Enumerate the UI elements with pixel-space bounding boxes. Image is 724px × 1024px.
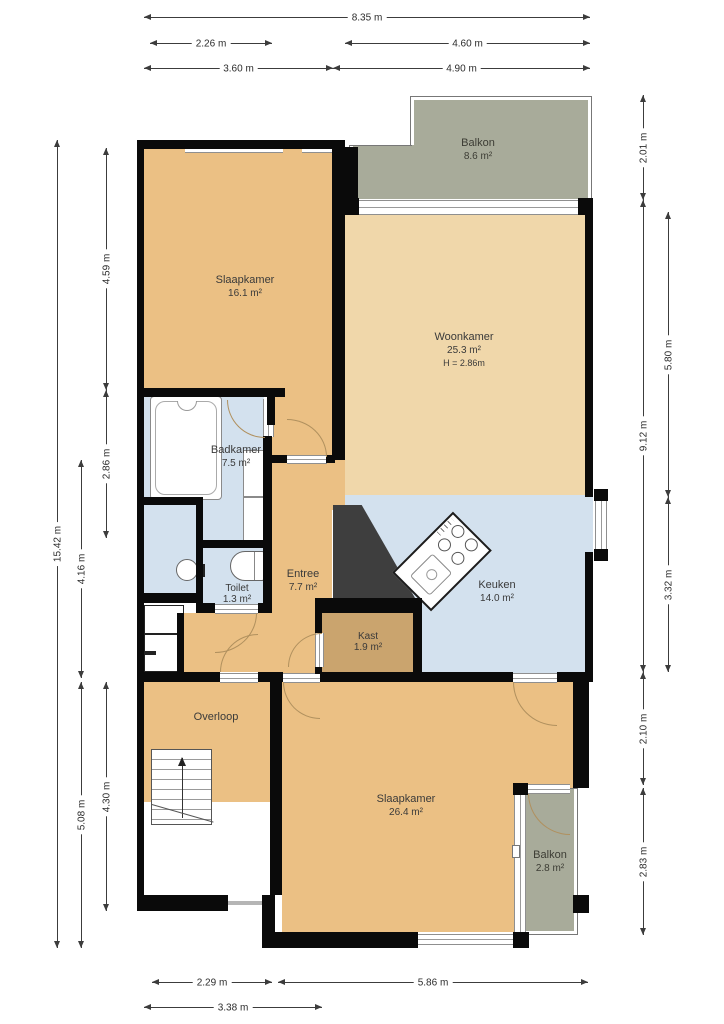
wall-segment	[258, 603, 270, 613]
kitchen-label: Keuken 14.0 m²	[478, 579, 515, 605]
landing-door-threshold	[220, 673, 258, 683]
dim-right-balcony: 2.01 m	[643, 95, 644, 200]
floorplan: Balkon 8.6 m² Balkon 2.8 m²	[0, 0, 724, 1024]
bathroom-label: Badkamer 7.5 m²	[211, 444, 261, 470]
dim-left-landing: 4.30 m	[106, 682, 107, 911]
wall-segment	[594, 489, 608, 501]
dim-top-total: 8.35 m	[144, 17, 590, 18]
dim-bottom-left-b: 3.38 m	[144, 1007, 322, 1008]
kitchen-door-recess	[585, 497, 593, 552]
livingroom-label: Woonkamer 25.3 m² H = 2.86m	[434, 331, 493, 370]
entrance-door-line	[228, 901, 262, 905]
livingroom-window	[358, 200, 578, 215]
dim-bottom-right-a: 5.86 m	[278, 982, 588, 983]
wall-segment	[137, 895, 228, 911]
wall-segment	[270, 682, 282, 895]
dim-right-balcony2: 2.83 m	[643, 788, 644, 935]
hall-label: Entree 7.7 m²	[287, 568, 319, 594]
washbasin-nook-floor	[144, 505, 196, 595]
wall-segment	[137, 140, 345, 149]
wall-segment	[177, 613, 184, 672]
washbasin-icon	[176, 559, 198, 581]
wall-segment	[585, 200, 593, 497]
wall-segment	[315, 598, 420, 613]
wall-segment	[585, 552, 593, 682]
wall-segment	[262, 932, 418, 948]
landing-label: Overloop	[194, 711, 239, 724]
wall-segment	[263, 436, 272, 613]
wall-segment	[345, 147, 358, 202]
room-balcony-top-lower: Balkon 8.6 m²	[349, 145, 592, 202]
wall-segment	[315, 613, 322, 633]
wall-segment	[594, 549, 608, 561]
wall-segment	[258, 672, 283, 682]
wall-segment	[137, 140, 144, 911]
wall-segment	[326, 455, 335, 463]
wall-segment	[267, 397, 275, 425]
closet-label: Kast 1.9 m²	[354, 631, 382, 653]
stairs-up-arrow	[182, 758, 183, 818]
bedroom2-label: Slaapkamer 26.4 m²	[377, 793, 436, 819]
wall-segment	[513, 783, 528, 795]
bedroom1-label: Slaapkamer 16.1 m²	[216, 274, 275, 300]
island-sink-icon	[410, 553, 452, 595]
dim-left-hall: 4.16 m	[81, 460, 82, 678]
wall-segment	[137, 388, 285, 397]
balcony-window-handle	[512, 845, 520, 858]
dim-top-left-a: 2.26 m	[150, 43, 272, 44]
wall-segment	[196, 603, 215, 613]
balcony-top-label: Balkon 8.6 m²	[461, 137, 495, 163]
dim-right-main: 9.12 m	[643, 200, 644, 672]
bedroom2-balcony-window	[514, 793, 526, 932]
wall-segment	[573, 672, 589, 788]
room-bedroom1-floor	[144, 147, 334, 392]
wall-segment	[513, 932, 529, 948]
dim-top-left-b: 3.60 m	[144, 68, 333, 69]
wall-segment	[137, 672, 220, 682]
wall-segment	[413, 598, 422, 672]
dim-right-living: 5.80 m	[668, 212, 669, 497]
dim-right-kitchen: 3.32 m	[668, 497, 669, 672]
dim-bottom-left-a: 2.29 m	[152, 982, 272, 983]
dim-right-gap: 2.10 m	[643, 672, 644, 785]
dim-left-bathroom: 2.86 m	[106, 390, 107, 538]
room-balcony-top	[410, 96, 592, 149]
wall-segment	[332, 140, 345, 460]
wall-segment	[573, 895, 589, 913]
dim-top-right-a: 4.60 m	[345, 43, 590, 44]
wall-segment	[315, 667, 322, 674]
balcony-bottom-label: Balkon 2.8 m²	[533, 849, 567, 875]
wall-segment	[272, 455, 287, 463]
dim-left-total: 15.42 m	[57, 140, 58, 948]
kitchen-french-balcony-door	[595, 498, 607, 551]
wall-segment	[137, 497, 203, 505]
dim-left-block: 5.08 m	[81, 682, 82, 948]
dim-top-right-b: 4.90 m	[333, 68, 590, 69]
room-balcony-bottom: Balkon 2.8 m²	[524, 788, 578, 935]
toilet-label: Toilet 1.3 m²	[223, 583, 251, 605]
wall-segment	[196, 540, 270, 548]
wall-segment	[345, 198, 359, 215]
wall-segment	[320, 672, 513, 682]
balcony-bottom-door-threshold	[528, 784, 570, 794]
bedroom2-window	[418, 934, 513, 945]
wall-segment	[137, 593, 203, 603]
dim-left-bedroom: 4.59 m	[106, 148, 107, 390]
